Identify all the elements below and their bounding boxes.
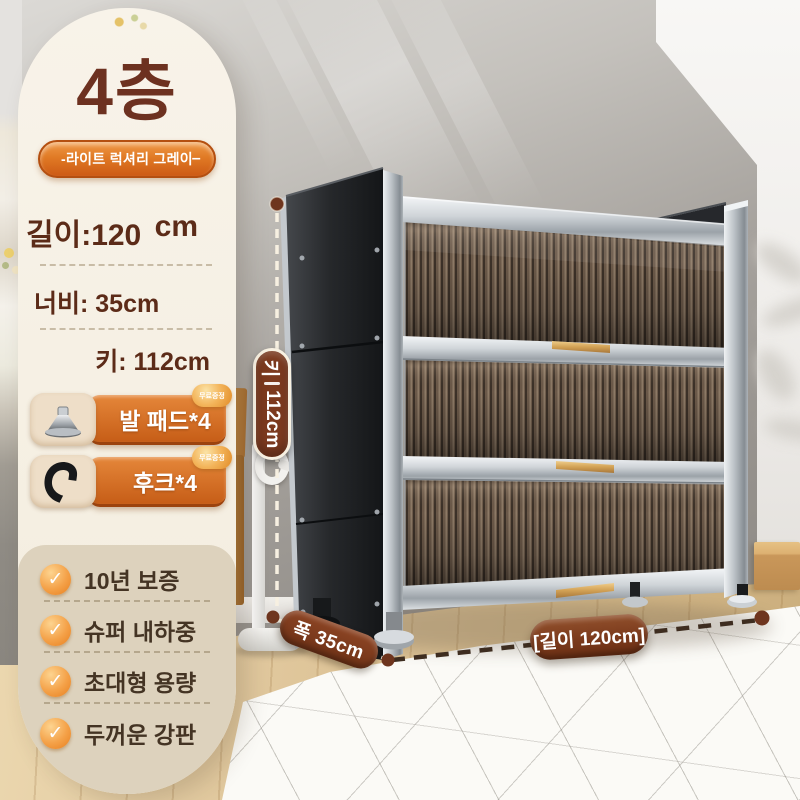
height-dim-value: 112cm [261, 390, 283, 448]
accessory-row-hooks: 후크*4 무료증정 [18, 455, 236, 509]
feature-label: 두꺼운 강판 [84, 716, 196, 750]
height-dim-name: 키 [259, 360, 286, 377]
flower-decor [106, 12, 150, 32]
gift-badge: 무료증정 [192, 446, 232, 469]
info-card: 4층 -라이트 럭셔리 그레이 – 길이:120 cm 너비: 35cm 키: … [18, 8, 236, 794]
height-spec: 키: 112cm [18, 342, 236, 378]
color-option-badge: -라이트 럭셔리 그레이 – [38, 140, 216, 178]
feature-item: ✓ 두꺼운 강판 [18, 715, 236, 751]
product-scene: 키 112cm 폭 35cm [길이 120cm] 4층 -라이트 럭셔리 그레… [0, 0, 800, 800]
feature-list-panel: ✓ 10년 보증 ✓ 슈퍼 내하중 ✓ 초대형 용량 ✓ 두꺼운 강판 [18, 545, 236, 794]
divider [44, 600, 210, 602]
length-dimension-pill: [길이 120cm] [529, 613, 650, 661]
length-spec-row: 길이:120 cm [18, 210, 236, 254]
badge-dash: – [192, 150, 201, 168]
accessory-row-foot-pads: 발 패드*4 무료증정 [18, 393, 236, 447]
divider [44, 702, 210, 704]
length-unit: cm [155, 210, 198, 254]
foot-pad-icon [30, 393, 96, 446]
divider [40, 264, 212, 266]
width-spec: 너비: 35cm [18, 284, 236, 320]
tier-title: 4층 [18, 38, 236, 134]
check-icon: ✓ [40, 564, 71, 595]
dim-dot [270, 197, 284, 211]
color-option-label: -라이트 럭셔리 그레이 [61, 149, 193, 169]
feature-item: ✓ 슈퍼 내하중 [18, 612, 236, 648]
check-icon: ✓ [40, 666, 71, 697]
feature-item: ✓ 10년 보증 [18, 561, 236, 597]
dim-dot [755, 611, 770, 626]
divider [40, 328, 212, 330]
dim-dot [267, 611, 280, 624]
length-spec: 길이:120 [26, 210, 141, 254]
feature-label: 슈퍼 내하중 [84, 613, 196, 647]
gift-badge: 무료증정 [192, 384, 232, 407]
dim-dot [382, 654, 395, 667]
check-icon: ✓ [40, 615, 71, 646]
check-icon: ✓ [40, 718, 71, 749]
divider [44, 651, 210, 653]
pill-divider [264, 382, 280, 385]
hook-icon [30, 455, 96, 508]
feature-label: 초대형 용량 [84, 664, 196, 698]
feature-label: 10년 보증 [84, 562, 179, 596]
height-dimension-pill: 키 112cm [253, 348, 291, 460]
feature-item: ✓ 초대형 용량 [18, 663, 236, 699]
